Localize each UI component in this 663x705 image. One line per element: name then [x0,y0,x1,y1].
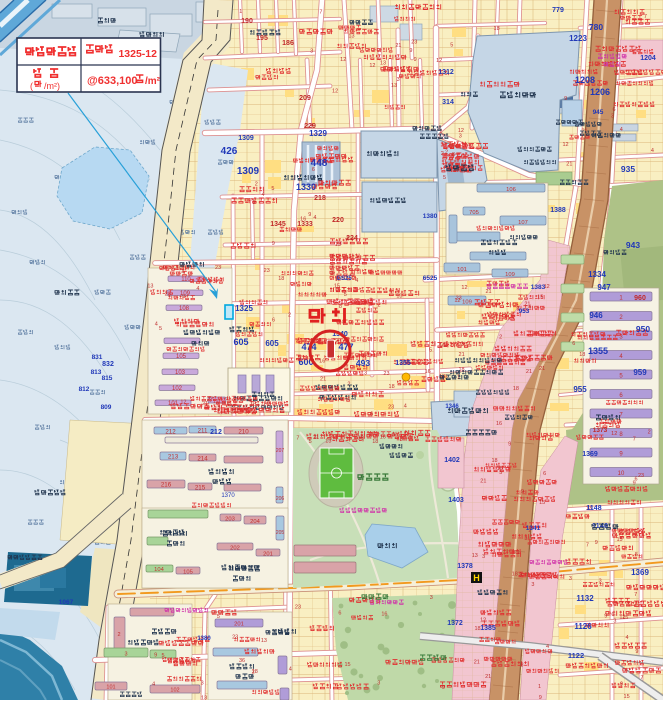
svg-text:9: 9 [633,480,636,486]
svg-text:16: 16 [425,369,431,375]
svg-text:1403: 1403 [448,497,464,504]
svg-text:1378: 1378 [457,563,473,570]
svg-text:190: 190 [241,18,253,25]
svg-text:947: 947 [597,283,611,292]
svg-text:1309: 1309 [237,166,260,177]
svg-text:959: 959 [633,368,647,377]
svg-text:15: 15 [537,294,543,300]
svg-text:314: 314 [442,99,454,106]
svg-text:1345: 1345 [270,221,286,228]
svg-text:3: 3 [531,582,534,588]
svg-text:7: 7 [330,265,333,271]
svg-text:2: 2 [445,150,448,156]
svg-text:23: 23 [215,265,221,271]
svg-text:13: 13 [335,242,341,248]
svg-text:21: 21 [539,366,545,372]
svg-text:12: 12 [619,614,625,620]
svg-text:109: 109 [505,272,515,278]
svg-text:9: 9 [409,48,412,54]
svg-text:18: 18 [278,276,284,282]
svg-text:9: 9 [154,652,157,658]
svg-text:16: 16 [380,434,386,440]
svg-text:2: 2 [117,632,120,638]
svg-text:101: 101 [106,685,115,691]
svg-text:23: 23 [165,291,171,297]
svg-text:6: 6 [611,612,614,618]
svg-text:12: 12 [214,406,220,412]
svg-text:4: 4 [626,635,629,641]
svg-text:204: 204 [250,519,260,525]
svg-text:15: 15 [539,500,545,506]
svg-text:3: 3 [482,554,485,560]
svg-text:13: 13 [147,283,153,289]
svg-text:4: 4 [181,269,184,275]
svg-text:23: 23 [264,268,270,274]
svg-text:493: 493 [356,358,370,368]
svg-text:104: 104 [154,567,164,573]
svg-text:2: 2 [499,335,502,341]
svg-text:3: 3 [461,342,464,348]
svg-text:/m²: /m² [145,76,161,87]
svg-text:2: 2 [648,429,651,435]
svg-text:9: 9 [635,649,638,655]
svg-text:5: 5 [635,552,638,558]
svg-text:13: 13 [391,83,397,89]
svg-text:6: 6 [272,317,275,323]
svg-text:18: 18 [491,458,497,464]
svg-text:1355: 1355 [588,346,608,356]
svg-text:13: 13 [261,638,267,644]
svg-text:105: 105 [183,570,193,576]
svg-text:1206: 1206 [590,87,610,97]
svg-text:3: 3 [400,437,403,443]
svg-text:H: H [473,573,480,583]
svg-text:5: 5 [331,271,334,277]
svg-text:102: 102 [172,386,183,392]
svg-text:812: 812 [79,386,90,393]
svg-text:13: 13 [348,34,354,40]
svg-text:3: 3 [201,680,204,686]
svg-text:2: 2 [288,313,291,319]
svg-text:109: 109 [462,300,472,306]
svg-text:6: 6 [612,107,615,113]
svg-text:7: 7 [634,592,637,598]
svg-text:1385: 1385 [480,625,496,632]
svg-text:GS25: GS25 [336,276,352,282]
svg-text:1312: 1312 [438,69,454,76]
svg-text:4: 4 [620,127,623,133]
svg-text:105: 105 [176,354,187,360]
svg-text:3: 3 [124,652,127,658]
svg-text:3: 3 [613,618,616,624]
svg-text:12: 12 [369,63,375,69]
svg-text:1341: 1341 [526,525,541,532]
svg-text:9: 9 [564,96,567,102]
svg-text:4: 4 [152,681,155,687]
svg-text:943: 943 [626,240,640,250]
svg-text:4: 4 [355,278,358,284]
svg-text:9: 9 [182,294,185,300]
svg-text:23: 23 [388,405,394,411]
svg-text:(: ( [30,81,33,91]
svg-text:18: 18 [513,386,519,392]
svg-text:15: 15 [497,466,503,472]
svg-text:16: 16 [381,612,387,618]
svg-text:8: 8 [520,663,523,669]
svg-text:6: 6 [370,411,373,417]
svg-text:448: 448 [311,158,328,169]
svg-text:211: 211 [198,428,208,435]
svg-text:9: 9 [539,695,542,700]
svg-text:13: 13 [325,439,331,445]
svg-text:5: 5 [429,347,432,353]
svg-text:106: 106 [506,187,516,193]
svg-text:6: 6 [543,471,546,477]
svg-text:1132: 1132 [576,594,594,603]
svg-text:210: 210 [238,429,249,436]
svg-text:18: 18 [372,439,378,445]
svg-text:2: 2 [253,200,256,206]
svg-text:201: 201 [234,622,244,628]
svg-text:21: 21 [474,660,480,666]
svg-text:21: 21 [320,376,326,382]
svg-text:3: 3 [310,49,313,55]
svg-text:4: 4 [546,644,549,650]
svg-text:218: 218 [314,195,326,202]
svg-text:1383: 1383 [531,284,546,291]
svg-text:1325: 1325 [235,304,253,313]
svg-text:13: 13 [396,294,402,300]
svg-text:6: 6 [572,341,575,347]
svg-text:21: 21 [395,43,401,49]
svg-text:9: 9 [442,685,445,691]
svg-text:8: 8 [339,304,342,310]
svg-text:201: 201 [263,552,273,558]
svg-text:780: 780 [589,22,603,32]
svg-text:1370: 1370 [221,493,235,499]
svg-text:935: 935 [621,164,635,174]
svg-text:12: 12 [480,618,486,624]
svg-text:21: 21 [524,301,530,307]
svg-text:7: 7 [586,542,589,548]
svg-text:813: 813 [91,369,102,376]
svg-text:4: 4 [651,148,654,154]
svg-text:3: 3 [430,595,433,601]
svg-text:4: 4 [313,215,316,221]
svg-text:5: 5 [271,186,274,192]
svg-text:946: 946 [589,311,603,320]
svg-text:12: 12 [332,89,338,95]
svg-text:2: 2 [252,670,255,676]
svg-text:6: 6 [338,611,341,617]
svg-text:1369: 1369 [631,568,649,577]
svg-text:12: 12 [340,57,346,63]
svg-text:9: 9 [414,57,417,63]
svg-text:779: 779 [552,7,564,14]
svg-text:5: 5 [309,439,312,445]
svg-text:3: 3 [569,576,572,582]
svg-text:202: 202 [230,546,240,552]
svg-text:220: 220 [332,217,344,224]
svg-text:1333: 1333 [297,221,313,228]
svg-text:8: 8 [452,152,455,158]
svg-text:15: 15 [624,694,630,700]
svg-text:13: 13 [338,267,344,273]
svg-text:1208: 1208 [575,75,595,85]
svg-text:224: 224 [346,235,358,242]
svg-text:16: 16 [250,401,256,407]
svg-text:23: 23 [295,604,301,610]
svg-text:1148: 1148 [586,505,601,512]
svg-text:13: 13 [380,61,386,67]
svg-text:1373: 1373 [593,427,608,434]
svg-text:1330: 1330 [296,182,316,192]
svg-text:6525: 6525 [423,275,438,282]
svg-text:1122: 1122 [568,651,584,660]
svg-text:18: 18 [389,384,395,390]
svg-text:186: 186 [282,40,294,47]
svg-text:15: 15 [616,537,622,543]
svg-text:1388: 1388 [550,207,566,214]
svg-text:21: 21 [514,550,520,556]
svg-text:13: 13 [201,695,207,700]
svg-text:1372: 1372 [447,620,463,627]
svg-text:213: 213 [168,454,179,461]
svg-text:4: 4 [262,192,265,198]
svg-text:23: 23 [411,39,417,45]
svg-text:945: 945 [593,109,604,116]
svg-text:1204: 1204 [640,55,656,62]
svg-text:205: 205 [276,530,285,536]
svg-text:16: 16 [496,421,502,427]
svg-text:9: 9 [595,540,598,546]
svg-text:@633,100: @633,100 [87,75,138,87]
svg-text:2: 2 [229,403,232,409]
svg-text:9: 9 [620,681,623,687]
svg-text:7: 7 [644,14,647,20]
svg-text:102: 102 [170,688,179,694]
svg-text:5: 5 [443,175,446,181]
svg-text:18: 18 [264,400,270,406]
svg-text:12: 12 [458,128,464,134]
svg-text:16: 16 [319,359,325,365]
svg-text:23: 23 [638,473,644,479]
svg-text:10: 10 [618,471,625,477]
svg-text:212: 212 [165,429,176,436]
svg-text:3: 3 [459,133,462,139]
svg-text:9: 9 [508,441,511,447]
svg-text:212: 212 [210,429,222,436]
svg-text:950: 950 [636,324,650,334]
svg-text:1325-12: 1325-12 [118,48,157,60]
svg-text:3: 3 [377,681,380,687]
svg-text:9: 9 [392,433,395,439]
svg-text:809: 809 [101,404,112,411]
svg-text:1334: 1334 [588,270,606,279]
svg-text:107: 107 [518,220,528,226]
svg-text:4: 4 [196,286,199,292]
svg-text:12: 12 [436,58,442,64]
svg-text:18: 18 [494,26,500,32]
svg-text:3: 3 [611,113,614,119]
svg-text:5: 5 [217,614,220,620]
svg-text:18: 18 [512,571,518,577]
svg-text:7: 7 [319,10,322,16]
svg-text:4: 4 [155,322,158,328]
svg-text:18: 18 [579,352,585,358]
svg-text:21: 21 [526,369,532,375]
svg-text:/m²): /m²) [44,81,60,91]
svg-text:815: 815 [102,375,113,382]
svg-text:15: 15 [344,662,350,668]
svg-text:207: 207 [276,448,285,454]
svg-text:1369: 1369 [582,451,598,458]
svg-text:12: 12 [611,431,617,437]
svg-text:4: 4 [289,667,292,673]
svg-text:1355: 1355 [395,360,411,367]
svg-text:215: 215 [195,485,206,492]
svg-text:605: 605 [233,337,248,347]
svg-text:1402: 1402 [444,457,460,464]
svg-text:9: 9 [519,572,522,578]
svg-text:705: 705 [469,210,479,216]
svg-text:605: 605 [265,339,279,348]
svg-text:953: 953 [519,308,530,315]
svg-text:9: 9 [272,241,275,247]
svg-text:23: 23 [383,371,389,377]
svg-text:7: 7 [640,675,643,681]
svg-text:3: 3 [209,398,212,404]
svg-text:21: 21 [313,435,319,441]
svg-text:21: 21 [485,289,491,295]
svg-text:206: 206 [276,496,285,502]
svg-text:108: 108 [179,306,190,312]
svg-text:1: 1 [538,684,541,690]
svg-text:5: 5 [159,326,162,332]
svg-text:1126: 1126 [574,622,592,631]
svg-text:36: 36 [239,658,245,664]
svg-text:1309: 1309 [238,135,254,142]
svg-text:2: 2 [255,181,258,187]
svg-text:4: 4 [404,403,407,409]
svg-text:1380: 1380 [423,213,438,220]
svg-text:3: 3 [364,370,367,376]
svg-text:1067: 1067 [59,599,74,606]
svg-text:1380: 1380 [197,636,211,642]
svg-text:214: 214 [197,456,208,463]
svg-text:426: 426 [221,146,238,157]
svg-text:12: 12 [180,399,186,405]
svg-text:955: 955 [573,385,587,394]
svg-text:1: 1 [239,9,242,15]
svg-text:23: 23 [232,635,238,641]
svg-text:3: 3 [599,579,602,585]
svg-text:195: 195 [256,35,268,42]
svg-text:203: 203 [225,517,235,523]
svg-text:831: 831 [92,354,103,361]
svg-text:18: 18 [358,436,364,442]
svg-text:15: 15 [334,284,340,290]
svg-text:16: 16 [439,343,445,349]
svg-text:832: 832 [102,361,114,368]
svg-text:9: 9 [521,489,524,495]
svg-text:9: 9 [308,212,311,218]
svg-text:7: 7 [633,436,636,442]
svg-text:21: 21 [202,401,208,407]
svg-text:5: 5 [450,43,453,49]
svg-text:12: 12 [563,142,569,148]
svg-text:21: 21 [485,674,491,680]
svg-text:13: 13 [472,553,478,559]
svg-text:12: 12 [461,285,467,291]
svg-text:101: 101 [457,267,467,273]
svg-text:3: 3 [524,536,527,542]
svg-text:1223: 1223 [569,34,587,43]
svg-text:5: 5 [344,292,347,298]
svg-text:1329: 1329 [309,129,327,138]
svg-text:209: 209 [299,95,311,102]
svg-text:2: 2 [441,151,444,157]
svg-text:103: 103 [175,370,186,376]
svg-text:21: 21 [459,352,465,358]
svg-text:21: 21 [566,161,572,167]
svg-text:9: 9 [604,614,607,620]
svg-text:960: 960 [634,295,646,302]
svg-text:7: 7 [296,436,299,442]
svg-text:12: 12 [454,298,460,304]
svg-text:21: 21 [480,478,486,484]
svg-text:216: 216 [161,482,172,489]
